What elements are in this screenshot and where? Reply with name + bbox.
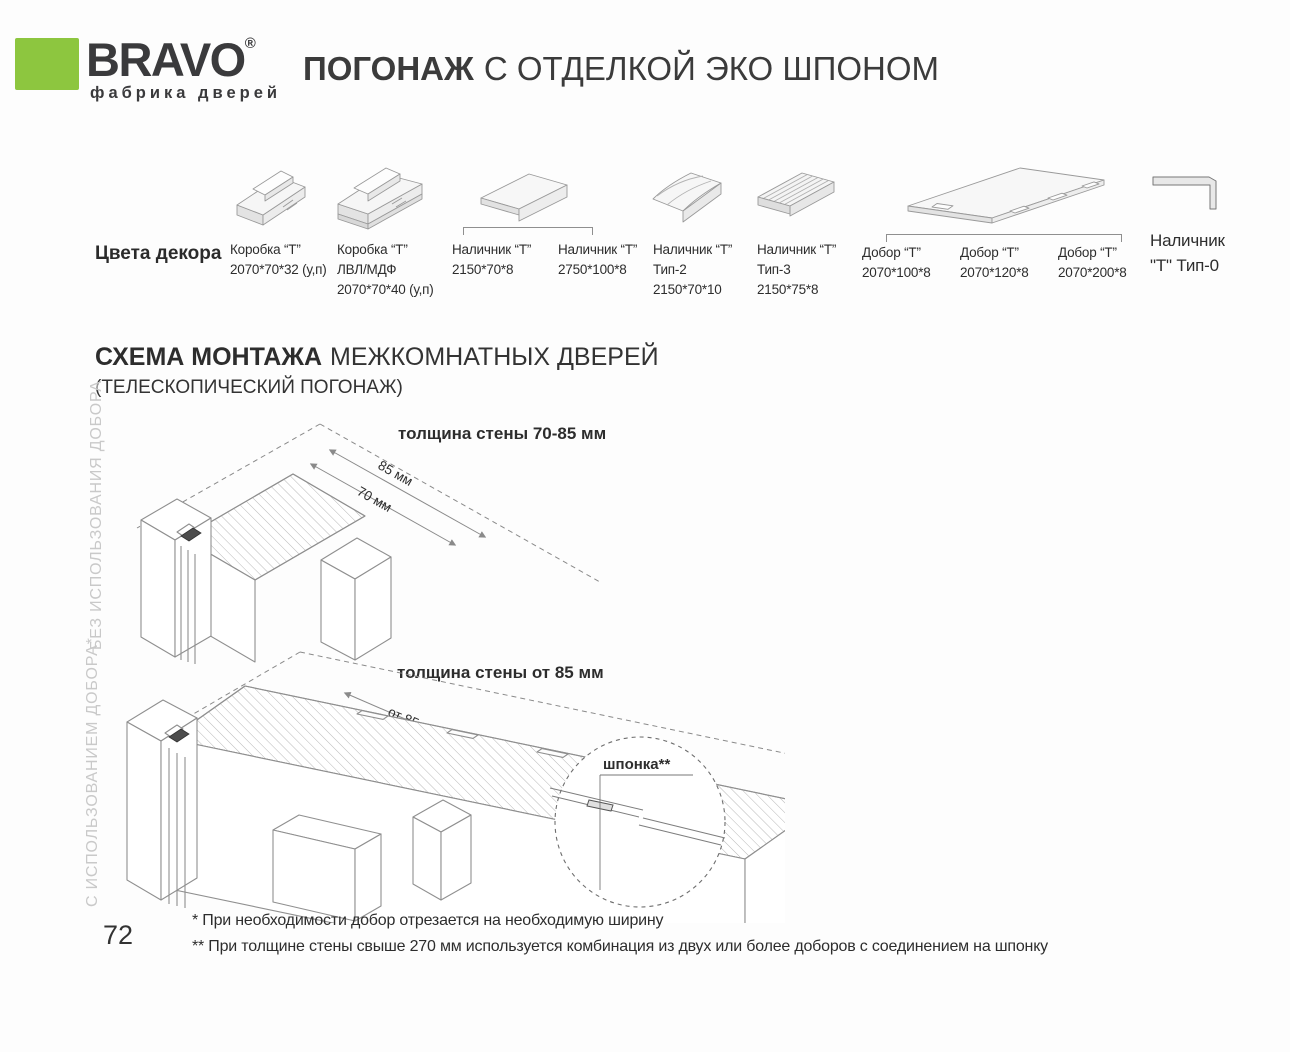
product-label-dobor-200: Добор “Т” 2070*200*8 — [1058, 243, 1127, 283]
product-label-nalichnik-tip0: Наличник "Т" Тип-0 — [1150, 228, 1225, 278]
product-label-nalichnik-tip2: Наличник “Т” Тип-2 2150*70*10 — [653, 240, 732, 300]
nalichnik-tip3-figure — [750, 165, 842, 223]
nalichnik-tip0-figure — [1150, 172, 1222, 214]
l-profile-shape — [1153, 177, 1216, 209]
shponka-label: шпонка** — [603, 756, 670, 773]
nalichnik-size-bracket — [463, 227, 593, 235]
product-label-dobor-100: Добор “Т” 2070*100*8 — [862, 243, 931, 283]
registered-mark: ® — [245, 35, 256, 52]
nalichnik-t-figure — [475, 168, 575, 226]
dimension-label-85: 85 мм — [376, 458, 416, 489]
dimension-line-85 — [330, 450, 485, 537]
product-label-nalichnik-2750: Наличник “Т” 2750*100*8 — [558, 240, 637, 280]
korobka-t-lvl-figure — [328, 158, 438, 238]
product-label-korobka-t: Коробка “Т” 2070*70*32 (у,п) — [230, 240, 327, 280]
dobor-size-bracket — [886, 234, 1122, 242]
brand-text: BRAVO — [86, 33, 245, 86]
footnote-2: ** При толщине стены свыше 270 мм исполь… — [192, 938, 1048, 956]
page-number: 72 — [103, 920, 133, 951]
korobka-t-figure — [225, 163, 317, 235]
scheme-title-bold: СХЕМА МОНТАЖА — [95, 343, 322, 371]
footnote-1: * При необходимости добор отрезается на … — [192, 912, 663, 930]
scheme-title: СХЕМА МОНТАЖАМЕЖКОМНАТНЫХ ДВЕРЕЙ — [95, 345, 659, 370]
diagram-mounting-no-dobor: 85 мм 70 мм — [125, 410, 645, 665]
dimension-label-70: 70 мм — [355, 484, 395, 515]
catalog-page: BRAVO® фабрика дверей ПОГОНАЖС ОТДЕЛКОЙ … — [0, 0, 1290, 1052]
scheme-title-rest: МЕЖКОМНАТНЫХ ДВЕРЕЙ — [330, 343, 659, 371]
product-label-dobor-120: Добор “Т” 2070*120*8 — [960, 243, 1029, 283]
dobor-t-figure — [898, 160, 1116, 228]
page-title-rest: С ОТДЕЛКОЙ ЭКО ШПОНОМ — [484, 50, 939, 87]
product-label-nalichnik-2150: Наличник “Т” 2150*70*8 — [452, 240, 531, 280]
brand-logo-square — [15, 38, 79, 90]
brand-name: BRAVO® — [86, 36, 256, 83]
brand-tagline: фабрика дверей — [90, 84, 281, 103]
nalichnik-tip2-figure — [645, 163, 737, 225]
decor-colors-label: Цвета декора — [95, 243, 221, 265]
product-label-nalichnik-tip3: Наличник “Т” Тип-3 2150*75*8 — [757, 240, 836, 300]
scheme-subtitle: (ТЕЛЕСКОПИЧЕСКИЙ ПОГОНАЖ) — [95, 377, 403, 399]
side-label-without-dobor: БЕЗ ИСПОЛЬЗОВАНИЯ ДОБОРА — [88, 408, 106, 650]
product-label-korobka-t-lvl: Коробка “Т” ЛВЛ/МДФ 2070*70*40 (у,п) — [337, 240, 434, 300]
diagram-mounting-with-dobor: от 85 - 270 мм — [95, 638, 785, 923]
page-title: ПОГОНАЖС ОТДЕЛКОЙ ЭКО ШПОНОМ — [303, 52, 939, 85]
page-title-bold: ПОГОНАЖ — [303, 50, 474, 87]
